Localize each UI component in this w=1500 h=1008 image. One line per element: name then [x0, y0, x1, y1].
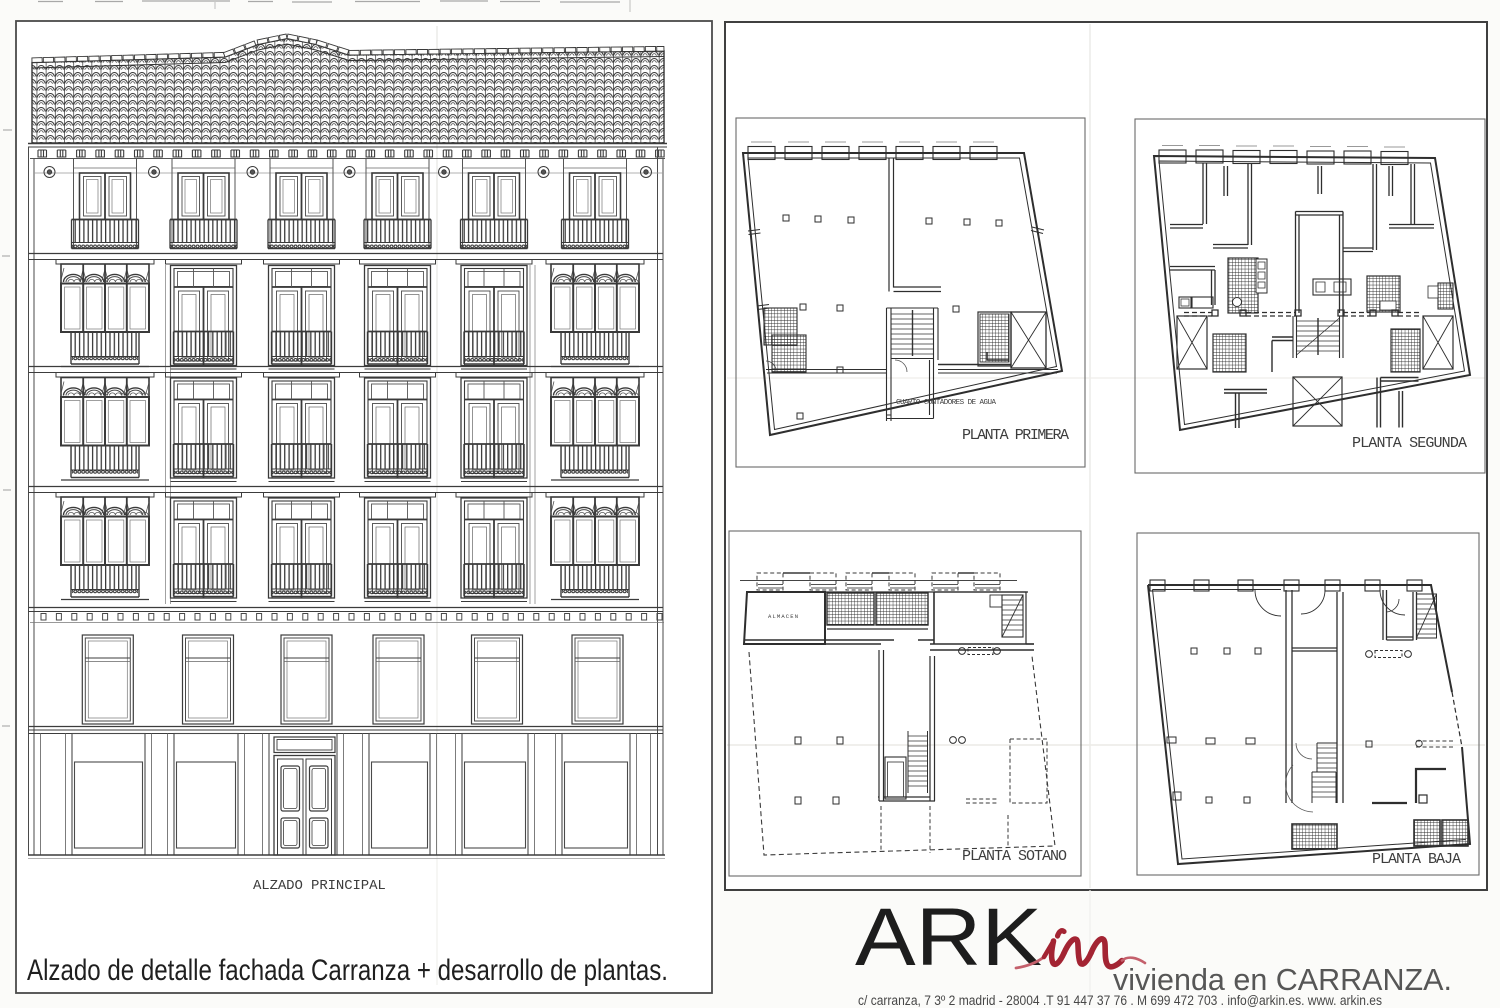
- svg-text:CUARTO CONTADORES DE AGUA: CUARTO CONTADORES DE AGUA: [896, 399, 996, 407]
- svg-text:ARK: ARK: [855, 892, 1042, 983]
- svg-text:PLANTA PRIMERA: PLANTA PRIMERA: [962, 427, 1070, 444]
- svg-text:PLANTA SOTANO: PLANTA SOTANO: [962, 848, 1068, 865]
- svg-text:ALZADO PRINCIPAL: ALZADO PRINCIPAL: [253, 878, 389, 894]
- svg-text:c/ carranza, 7 3º 2 madrid: c/ carranza, 7 3º 2 madrid - 28004 .T 91…: [858, 993, 1382, 1008]
- svg-text:vivienda en CARRANZA.: vivienda en CARRANZA.: [1113, 962, 1452, 997]
- svg-text:Alzado de detalle fachada Carr: Alzado de detalle fachada Carranza + des…: [27, 954, 668, 987]
- svg-text:ALMACEN: ALMACEN: [768, 613, 798, 620]
- svg-text:PLANTA SEGUNDA: PLANTA SEGUNDA: [1352, 435, 1468, 452]
- svg-text:PLANTA BAJA: PLANTA BAJA: [1372, 851, 1462, 868]
